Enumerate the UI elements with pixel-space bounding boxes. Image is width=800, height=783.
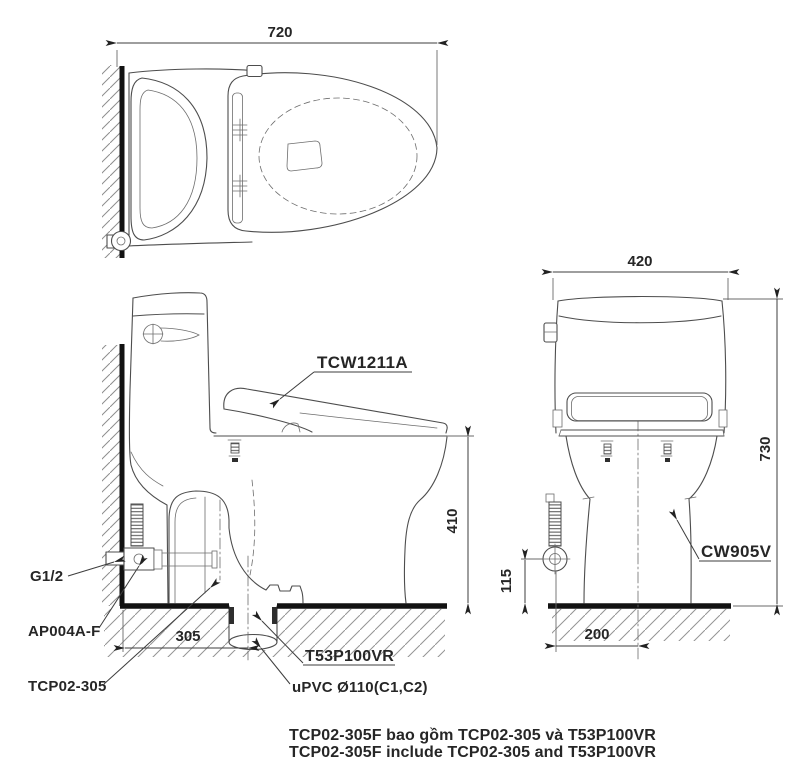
dim-115-label: 115	[498, 569, 515, 593]
supply-valve-front	[540, 494, 570, 574]
tank-bottom-edge	[129, 242, 252, 246]
top-view: 720	[102, 24, 437, 258]
pedestal-front	[566, 436, 717, 603]
wall-hatching-side-view	[102, 345, 121, 606]
notes: TCP02-305F bao gồm TCP02-305 và T53P100V…	[289, 727, 656, 761]
dim-420: 420	[553, 253, 728, 300]
drain-pipe-label: uPVC Ø110(C1,C2)	[292, 679, 428, 696]
washlet-front	[559, 393, 724, 436]
note-english: TCP02-305F include TCP02-305 and T53P100…	[289, 744, 656, 761]
product-code-label: TCP02-305	[28, 678, 107, 695]
dim-410: 410	[444, 436, 474, 603]
supply-thread-label: G1/2	[30, 568, 63, 585]
seat-bolts-front	[601, 441, 673, 462]
seat-part-label: TCW1211A	[317, 353, 408, 372]
tank-top-edge	[129, 69, 258, 73]
front-view: 420 730 115 200 CW905V	[498, 253, 783, 662]
flange-label: T53P100VR	[305, 648, 394, 665]
wall-hatching-top-view	[102, 65, 121, 258]
dim-410-label: 410	[444, 508, 461, 533]
label-g12: G1/2	[30, 562, 114, 585]
toilet-side-profile	[129, 293, 447, 603]
toilet-dimension-drawing: 720	[0, 0, 800, 783]
supply-circle-top-view	[112, 232, 131, 251]
bowl-part-label: CW905V	[701, 542, 772, 561]
note-vietnamese: TCP02-305F bao gồm TCP02-305 và T53P100V…	[289, 727, 656, 744]
dim-720-label: 720	[267, 24, 292, 41]
side-view: 410 305 TCW1211A G1/2 AP004A-F TCP02-305…	[28, 293, 474, 696]
drain-pipe	[229, 606, 277, 650]
tank-surface-inner	[140, 90, 197, 228]
seat-bolt-side	[228, 440, 241, 462]
dim-730-label: 730	[757, 436, 774, 461]
floor-hatching-front-view	[552, 609, 730, 641]
tank-surface-outer	[131, 78, 207, 240]
dim-420-label: 420	[627, 253, 652, 270]
technical-drawing-page: 720	[0, 0, 800, 783]
stop-valve-label: AP004A-F	[28, 623, 100, 640]
flush-button	[247, 66, 262, 77]
label-tcw1211a: TCW1211A	[280, 353, 412, 399]
dim-200-label: 200	[584, 626, 609, 643]
washlet-seat-profile	[224, 388, 447, 433]
dim-305-label: 305	[175, 628, 200, 645]
dim-115: 115	[498, 559, 543, 603]
